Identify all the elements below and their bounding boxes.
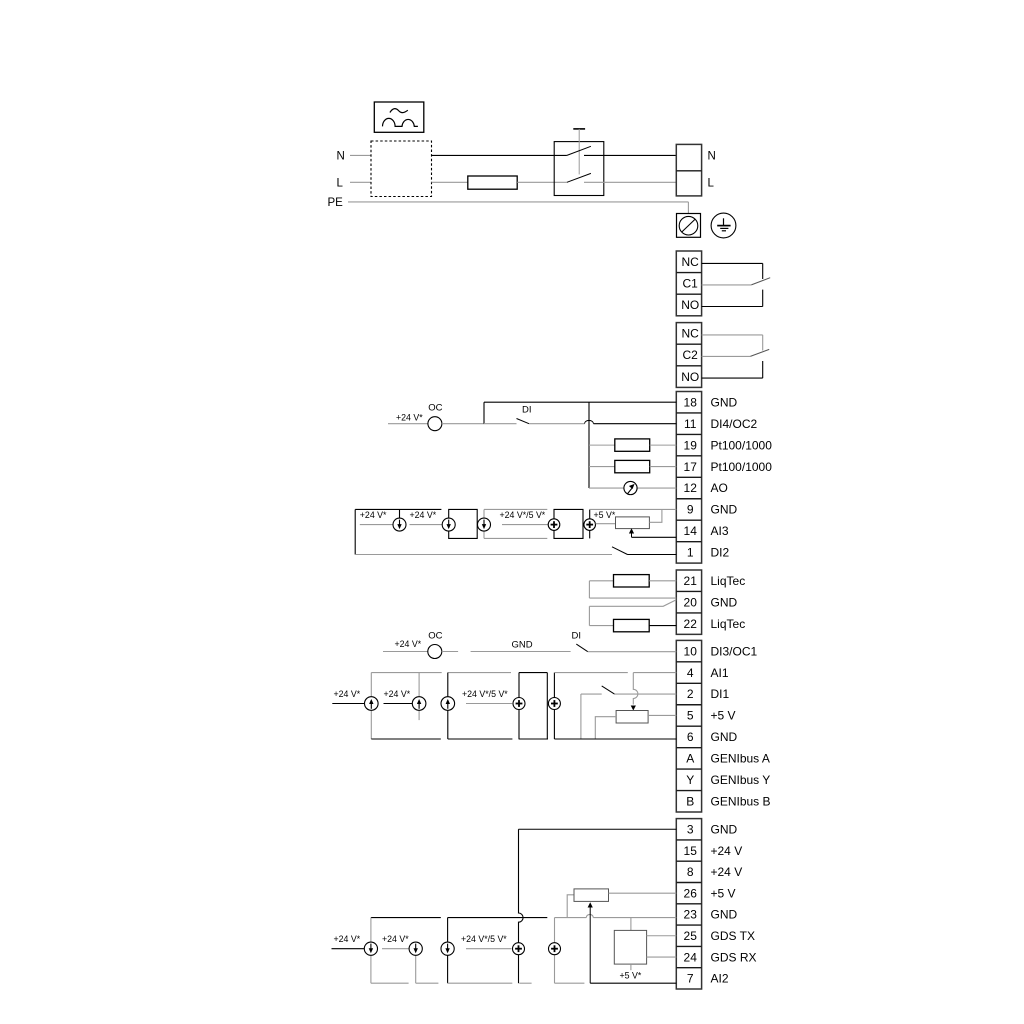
- svg-text:+24 V*/5 V*: +24 V*/5 V*: [462, 689, 508, 699]
- svg-text:Y: Y: [686, 773, 694, 787]
- svg-text:PE: PE: [328, 197, 344, 209]
- svg-text:+5 V*: +5 V*: [594, 510, 616, 520]
- svg-text:+24 V: +24 V: [711, 844, 743, 858]
- svg-text:GENIbus Y: GENIbus Y: [711, 773, 771, 787]
- svg-text:3: 3: [687, 822, 694, 836]
- svg-text:25: 25: [684, 929, 698, 943]
- svg-text:N: N: [708, 151, 716, 163]
- svg-text:NO: NO: [681, 370, 699, 384]
- svg-text:23: 23: [684, 908, 698, 922]
- svg-text:+24 V*: +24 V*: [382, 934, 409, 944]
- svg-text:+24 V*: +24 V*: [360, 510, 387, 520]
- svg-text:GENIbus A: GENIbus A: [711, 752, 770, 766]
- svg-text:DI1: DI1: [711, 687, 730, 701]
- svg-text:+5 V*: +5 V*: [620, 971, 642, 981]
- svg-text:15: 15: [684, 844, 698, 858]
- svg-text:+24 V*: +24 V*: [334, 934, 361, 944]
- svg-text:B: B: [686, 794, 694, 808]
- svg-text:18: 18: [684, 395, 698, 409]
- svg-text:NO: NO: [681, 298, 699, 312]
- svg-text:12: 12: [684, 481, 698, 495]
- svg-text:AI3: AI3: [711, 524, 729, 538]
- svg-text:OC: OC: [428, 630, 442, 641]
- svg-text:OC: OC: [428, 403, 442, 414]
- svg-text:10: 10: [684, 644, 698, 658]
- svg-text:2: 2: [687, 687, 694, 701]
- svg-text:L: L: [708, 178, 715, 190]
- svg-text:LiqTec: LiqTec: [711, 574, 746, 588]
- svg-text:GND: GND: [512, 639, 533, 650]
- svg-text:C2: C2: [683, 348, 699, 362]
- svg-text:NC: NC: [682, 327, 700, 341]
- svg-text:DI: DI: [572, 630, 582, 641]
- svg-text:+24 V*: +24 V*: [410, 510, 437, 520]
- svg-text:1: 1: [687, 546, 694, 560]
- svg-text:22: 22: [684, 617, 698, 631]
- svg-text:GND: GND: [711, 730, 738, 744]
- svg-text:+24 V*: +24 V*: [384, 689, 411, 699]
- svg-text:+24 V*: +24 V*: [396, 413, 423, 423]
- svg-text:14: 14: [684, 524, 698, 538]
- svg-text:5: 5: [687, 709, 694, 723]
- svg-text:NC: NC: [682, 255, 700, 269]
- svg-text:AI1: AI1: [711, 666, 729, 680]
- svg-text:+24 V: +24 V: [711, 865, 743, 879]
- svg-text:20: 20: [684, 595, 698, 609]
- svg-text:GND: GND: [711, 595, 738, 609]
- svg-text:AO: AO: [711, 481, 728, 495]
- svg-text:GND: GND: [711, 503, 738, 517]
- svg-text:N: N: [337, 151, 345, 163]
- svg-text:L: L: [337, 178, 344, 190]
- svg-text:24: 24: [684, 950, 698, 964]
- svg-text:8: 8: [687, 865, 694, 879]
- svg-text:+24 V*: +24 V*: [395, 639, 422, 649]
- svg-text:+24 V*: +24 V*: [334, 689, 361, 699]
- svg-text:GND: GND: [711, 395, 738, 409]
- svg-text:7: 7: [687, 972, 694, 986]
- svg-text:GENIbus B: GENIbus B: [711, 794, 771, 808]
- svg-text:+24 V*/5 V*: +24 V*/5 V*: [500, 510, 546, 520]
- svg-text:DI4/OC2: DI4/OC2: [711, 417, 758, 431]
- svg-text:DI3/OC1: DI3/OC1: [711, 644, 758, 658]
- svg-text:+24 V*/5 V*: +24 V*/5 V*: [461, 934, 507, 944]
- svg-text:21: 21: [684, 574, 698, 588]
- svg-text:11: 11: [684, 417, 697, 431]
- svg-text:LiqTec: LiqTec: [711, 617, 746, 631]
- svg-text:GDS RX: GDS RX: [711, 950, 757, 964]
- svg-text:17: 17: [684, 460, 698, 474]
- svg-text:+5 V: +5 V: [711, 709, 736, 723]
- svg-text:DI2: DI2: [711, 546, 730, 560]
- svg-text:C1: C1: [683, 277, 699, 291]
- svg-text:A: A: [686, 752, 694, 766]
- svg-text:AI2: AI2: [711, 972, 729, 986]
- svg-text:6: 6: [687, 730, 694, 744]
- svg-text:9: 9: [687, 503, 694, 517]
- svg-text:26: 26: [684, 886, 698, 900]
- svg-text:4: 4: [687, 666, 694, 680]
- svg-text:GND: GND: [711, 908, 738, 922]
- svg-text:GDS TX: GDS TX: [711, 929, 755, 943]
- svg-text:DI: DI: [522, 404, 532, 415]
- svg-text:19: 19: [684, 438, 698, 452]
- svg-text:Pt100/1000: Pt100/1000: [711, 438, 773, 452]
- svg-text:Pt100/1000: Pt100/1000: [711, 460, 773, 474]
- svg-text:GND: GND: [711, 822, 738, 836]
- svg-text:+5 V: +5 V: [711, 886, 736, 900]
